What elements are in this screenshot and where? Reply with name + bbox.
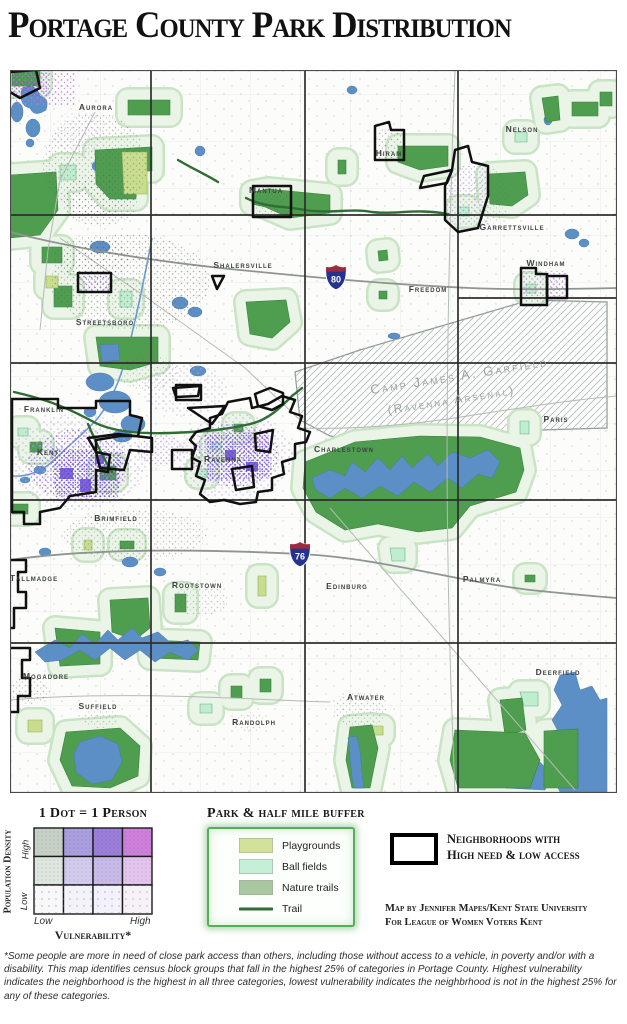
svg-text:80: 80 [331, 275, 341, 285]
dot-legend-title: 1 Dot = 1 Person [18, 806, 168, 822]
township-label: Deerfield [536, 667, 581, 677]
x-axis-high: High [130, 916, 151, 927]
township-label: Freedom [409, 284, 448, 294]
y-axis-low: Low [19, 893, 30, 910]
legend-item-label: Trail [282, 903, 302, 915]
high-need-legend-line1: Neighborhoods with [447, 831, 622, 847]
page-title: Portage County Park Distribution [8, 4, 592, 47]
high-need-outline-swatch [390, 833, 438, 865]
township-label: Tallmadge [10, 573, 58, 583]
map-canvas: 80 76 Aurora Mantua Hiram Nelson Garrett… [10, 70, 617, 793]
township-label: Garrettsville [480, 222, 545, 232]
township-label: Aurora [79, 102, 113, 112]
park-legend-box: Playgrounds Ball fields Nature trails Tr… [207, 827, 355, 927]
ball-fields-swatch [239, 859, 273, 874]
township-label: Suffield [79, 701, 118, 711]
footnote: *Some people are more in need of close p… [4, 950, 623, 1003]
credit-line1: Map by Jennifer Mapes/Kent State Univers… [385, 902, 620, 916]
credit-line2: For League of Women Voters Kent [385, 916, 620, 930]
legend-item-label: Nature trails [282, 882, 339, 894]
park-legend-title: Park & half mile buffer [207, 806, 367, 822]
x-axis-label: Vulnerability* [18, 928, 168, 943]
township-label: Mogadore [23, 671, 69, 681]
township-label: Palmyra [463, 574, 501, 584]
y-axis-label: Population Density [3, 826, 14, 918]
legend-item-playgrounds: Playgrounds [239, 835, 353, 856]
township-label: Hiram [376, 148, 402, 158]
township-label: Ravenna [204, 454, 242, 464]
y-axis-high: High [20, 840, 31, 860]
township-label: Franklin [24, 404, 64, 414]
township-label: Paris [543, 414, 568, 424]
township-label: Rootstown [172, 580, 222, 590]
township-label: Brimfield [94, 513, 137, 523]
township-label: Kent [37, 447, 59, 457]
high-need-legend-label: Neighborhoods with High need & low acces… [447, 831, 622, 864]
bivariate-grid [33, 827, 153, 920]
township-label: Streetsboro [76, 317, 134, 327]
township-label: Nelson [506, 124, 539, 134]
dot-legend-y-axis: Population Density [2, 826, 14, 918]
township-label: Windham [526, 258, 565, 268]
playgrounds-swatch [239, 838, 273, 853]
legend-item-label: Ball fields [282, 861, 327, 873]
township-label: Edinburg [326, 581, 368, 591]
nature-trails-swatch [239, 880, 273, 895]
svg-text:76: 76 [295, 552, 305, 562]
high-need-legend-line2: High need & low access [447, 847, 622, 863]
x-axis-low: Low [34, 916, 52, 927]
grid-dot-texture [34, 828, 152, 885]
township-label: Randolph [232, 717, 276, 727]
grid-dot-texture-sparse [34, 885, 152, 914]
legend-item-ball-fields: Ball fields [239, 856, 353, 877]
map-credit: Map by Jennifer Mapes/Kent State Univers… [385, 902, 620, 930]
legend-item-trail: Trail [239, 898, 353, 919]
township-label: Charlestown [314, 444, 374, 454]
poster: Portage County Park Distribution [0, 0, 627, 1024]
township-label: Shalersville [213, 260, 272, 270]
county-map: 80 76 Aurora Mantua Hiram Nelson Garrett… [10, 70, 617, 793]
legend-item-nature-trails: Nature trails [239, 877, 353, 898]
township-label: Mantua [249, 185, 283, 195]
township-label: Atwater [347, 692, 385, 702]
trail-line-swatch [239, 901, 273, 916]
legend-item-label: Playgrounds [282, 840, 340, 852]
